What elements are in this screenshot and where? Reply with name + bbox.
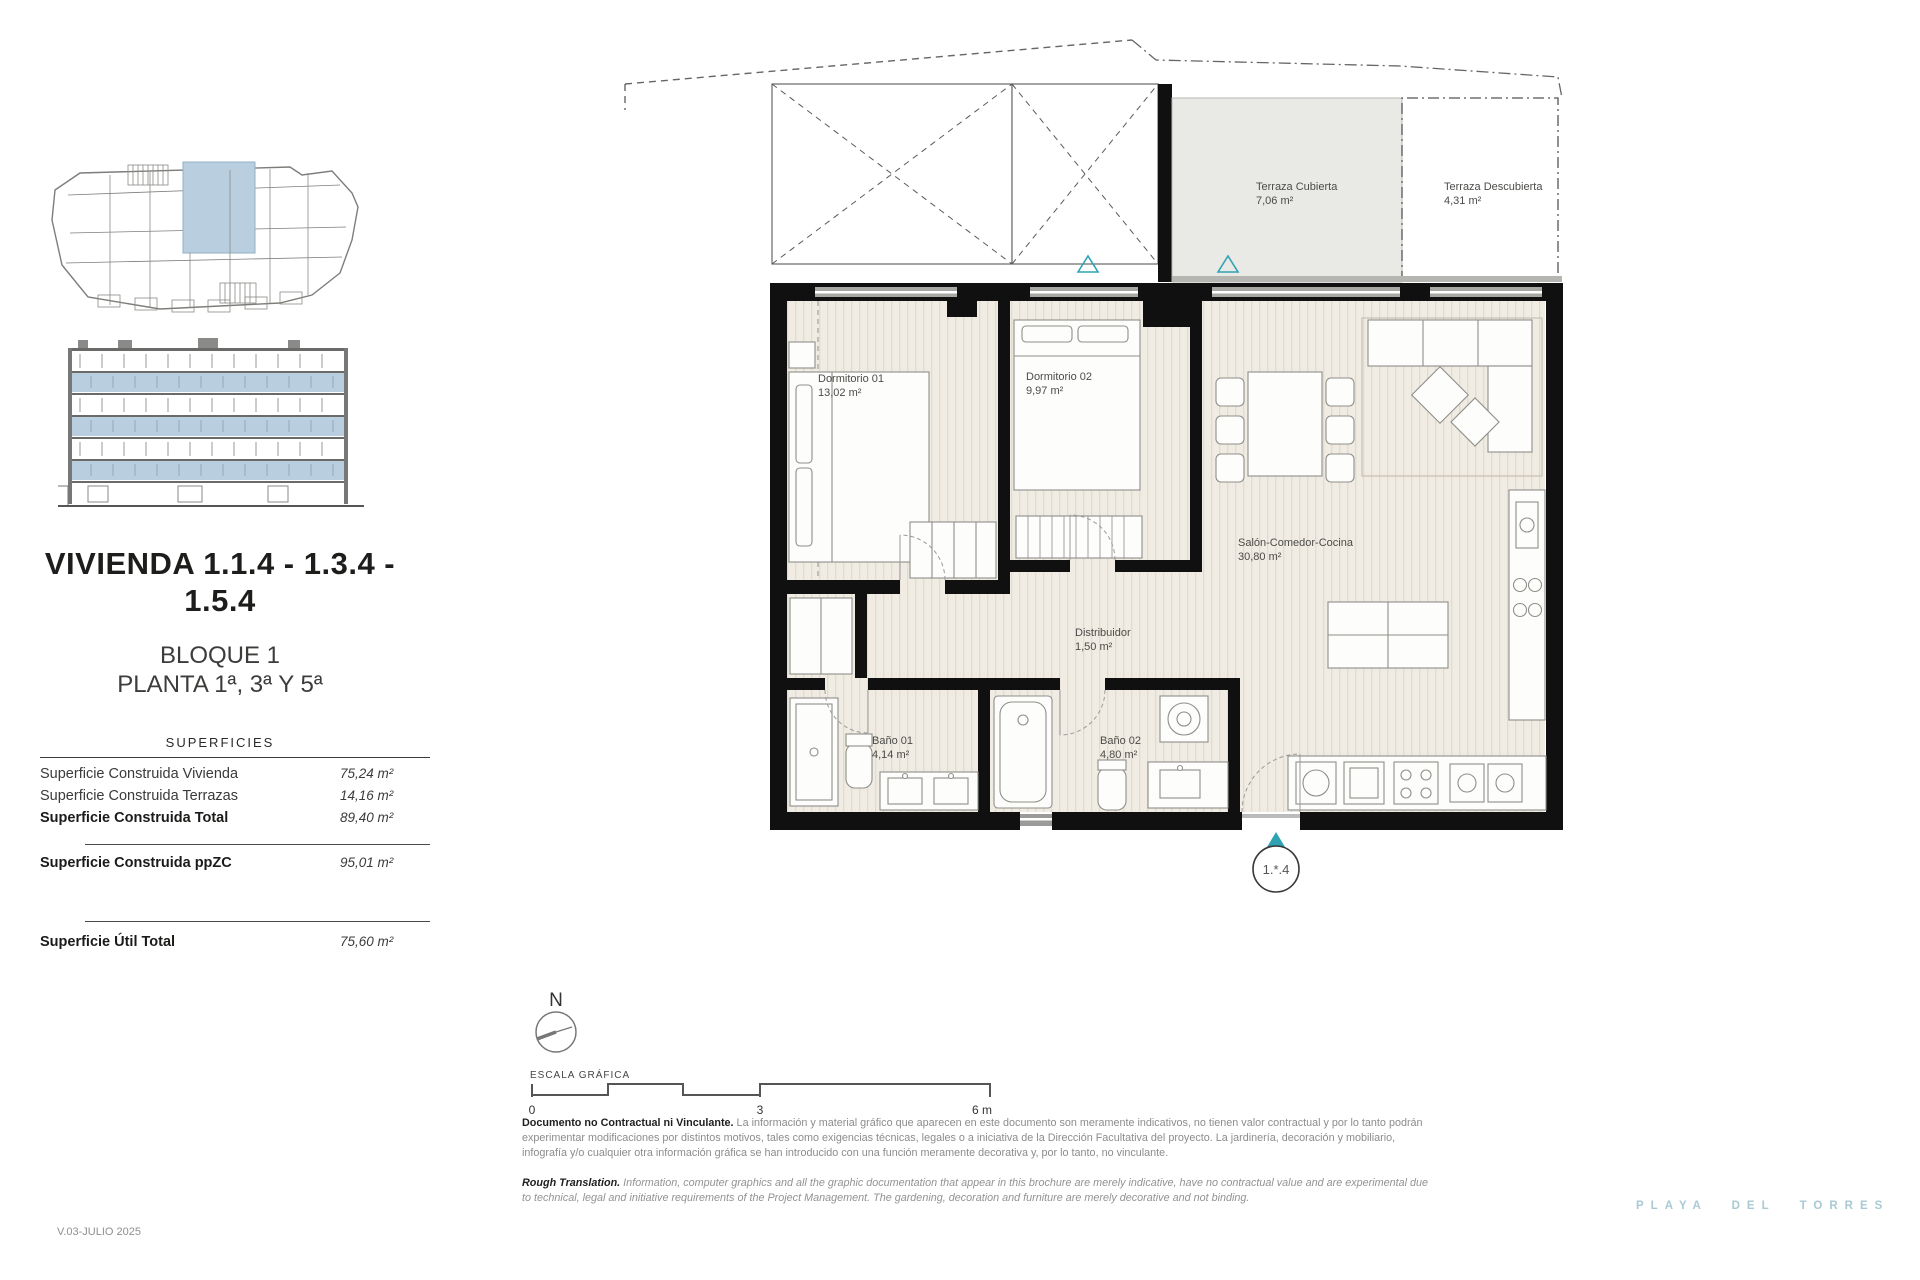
row-label: Superficie Útil Total	[40, 934, 175, 950]
row-value: 95,01 m²	[340, 855, 430, 870]
terrace-edge	[1172, 276, 1562, 282]
row-value: 75,60 m²	[340, 934, 430, 949]
page-subtitle: BLOQUE 1 PLANTA 1ª, 3ª Y 5ª	[20, 642, 420, 700]
toilet	[1098, 768, 1126, 810]
room-label-bano-01: Baño 014,14 m²	[872, 734, 913, 763]
terrace-wall	[1158, 84, 1172, 282]
disclaimer-es: Documento no Contractual ni Vinculante. …	[522, 1117, 1423, 1159]
brochure-page: VIVIENDA 1.1.4 - 1.3.4 - 1.5.4 BLOQUE 1 …	[0, 0, 1920, 1280]
brand-logo: PLAYA DEL TORRES	[1636, 1200, 1889, 1212]
toilet	[846, 744, 872, 788]
floor-plan: 1.*.4	[600, 20, 1600, 920]
row-label: Superficie Construida Total	[40, 810, 228, 826]
unit-marker-label: 1.*.4	[1263, 862, 1290, 877]
adjacent-unit-boxes	[772, 84, 1158, 264]
table-divider	[85, 844, 430, 845]
elevation-floors	[58, 338, 364, 506]
version-label: V.03-JULIO 2025	[57, 1226, 141, 1238]
page-title: VIVIENDA 1.1.4 - 1.3.4 - 1.5.4	[20, 546, 420, 619]
disclaimer-block: Documento no Contractual ni Vinculante. …	[522, 1116, 1437, 1205]
table-row: Superficie Construida ppZC 95,01 m²	[40, 855, 430, 877]
table-row: Superficie Construida Total 89,40 m²	[40, 810, 430, 832]
entry-threshold	[1242, 814, 1300, 818]
building-elevation-diagram	[58, 336, 364, 518]
row-value: 75,24 m²	[340, 766, 430, 781]
scale-and-north: N ESCALA GRÁFICA 0 3 6 m	[520, 980, 1060, 1120]
room-label-dormitorio-01: Dormitorio 0113,02 m²	[818, 372, 884, 401]
scale-bar	[532, 1084, 990, 1097]
scale-tick-6: 6 m	[972, 1103, 992, 1117]
room-label-salon: Salón-Comedor-Cocina30,80 m²	[1238, 536, 1353, 565]
scale-tick-3: 3	[757, 1103, 764, 1117]
scale-tick-0: 0	[529, 1103, 536, 1117]
room-label-terraza-descubierta: Terraza Descubierta4,31 m²	[1444, 180, 1542, 209]
disclaimer-en: Rough Translation. Information, computer…	[522, 1176, 1437, 1206]
room-label-bano-02: Baño 024,80 m²	[1100, 734, 1141, 763]
row-label: Superficie Construida ppZC	[40, 855, 232, 871]
site-plan-diagram	[40, 145, 380, 340]
svg-text:N: N	[549, 990, 563, 1011]
scale-label: ESCALA GRÁFICA	[530, 1068, 630, 1081]
table-row: Superficie Construida Terrazas 14,16 m²	[40, 788, 430, 810]
entry-arrow-icon	[1267, 832, 1285, 847]
shower	[790, 698, 838, 806]
row-value: 14,16 m²	[340, 788, 430, 803]
surface-table-heading: SUPERFICIES	[20, 735, 420, 750]
heading-rule	[40, 757, 430, 758]
wardrobe	[910, 522, 996, 578]
bathtub	[994, 696, 1052, 808]
dining-table	[1248, 372, 1322, 476]
room-label-distribuidor: Distribuidor1,50 m²	[1075, 626, 1131, 655]
floor-label: PLANTA 1ª, 3ª Y 5ª	[117, 671, 322, 698]
unit-marker: 1.*.4	[1253, 832, 1299, 892]
title-line1: VIVIENDA 1.1.4 - 1.3.4 -	[45, 546, 395, 581]
north-arrow-icon: N	[536, 990, 576, 1052]
block-label: BLOQUE 1	[160, 642, 280, 669]
site-plan-highlighted-unit	[183, 162, 255, 253]
surface-table: Superficie Construida Vivienda 75,24 m² …	[40, 766, 430, 956]
table-row: Superficie Construida Vivienda 75,24 m²	[40, 766, 430, 788]
bed	[1014, 320, 1140, 490]
table-row: Superficie Útil Total 75,60 m²	[40, 934, 430, 956]
row-label: Superficie Construida Terrazas	[40, 788, 238, 804]
row-value: 89,40 m²	[340, 810, 430, 825]
wardrobe	[1016, 516, 1142, 558]
row-label: Superficie Construida Vivienda	[40, 766, 238, 782]
sofa	[1368, 320, 1532, 366]
table-divider	[85, 921, 430, 922]
title-line2: 1.5.4	[184, 583, 255, 618]
room-label-terraza-cubierta: Terraza Cubierta7,06 m²	[1256, 180, 1337, 209]
room-label-dormitorio-02: Dormitorio 029,97 m²	[1026, 370, 1092, 399]
